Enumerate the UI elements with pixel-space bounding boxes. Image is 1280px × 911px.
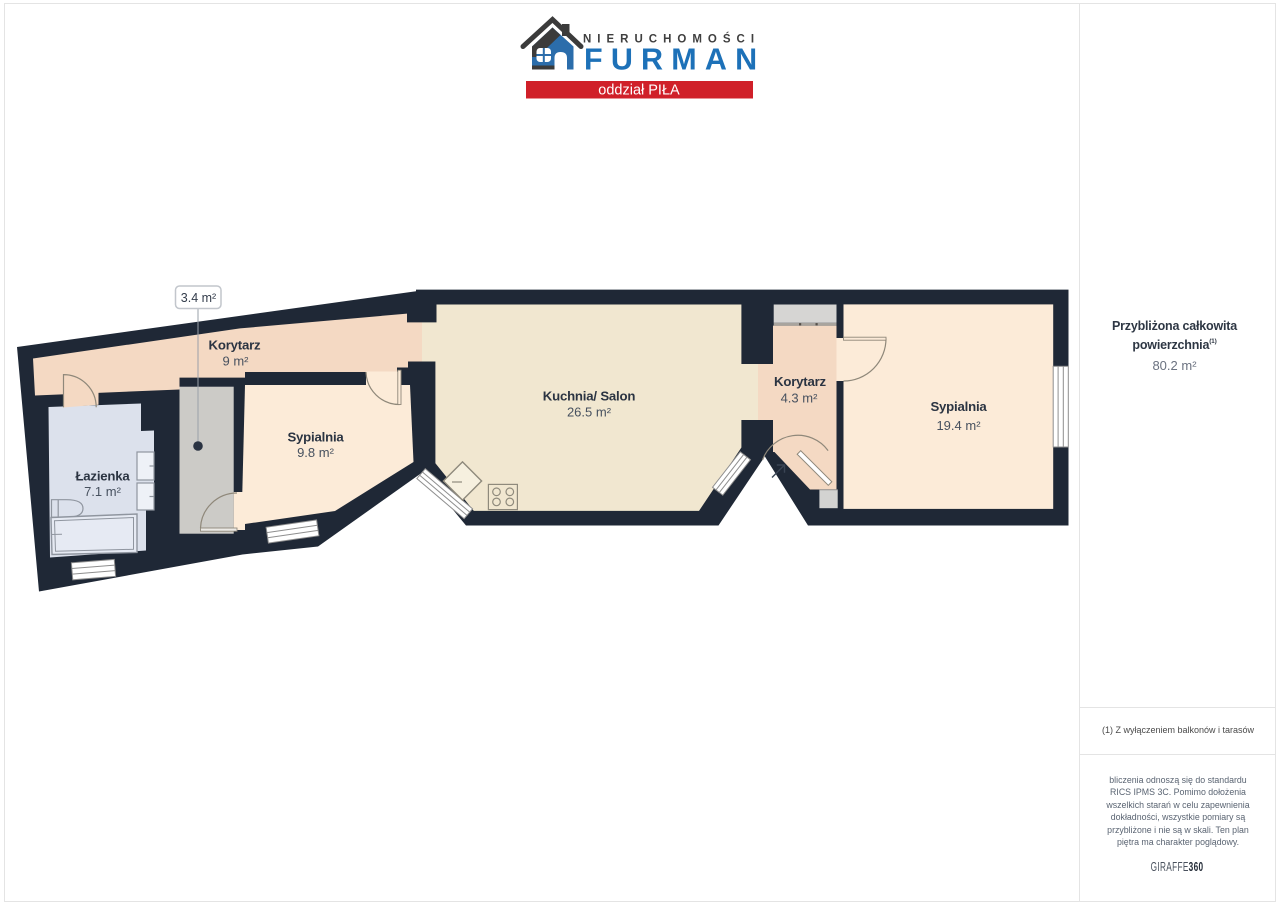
svg-text:4.3 m²: 4.3 m²	[781, 391, 819, 406]
svg-text:Sypialnia: Sypialnia	[930, 399, 987, 414]
svg-text:26.5 m²: 26.5 m²	[567, 405, 612, 420]
svg-text:9.8 m²: 9.8 m²	[297, 445, 335, 460]
svg-text:3.4 m²: 3.4 m²	[181, 291, 216, 305]
svg-text:Sypialnia: Sypialnia	[287, 429, 344, 444]
svg-text:9 m²: 9 m²	[223, 354, 250, 369]
svg-text:Kuchnia/ Salon: Kuchnia/ Salon	[543, 388, 636, 403]
svg-text:7.1 m²: 7.1 m²	[84, 484, 122, 499]
svg-text:Korytarz: Korytarz	[774, 374, 827, 389]
svg-text:Łazienka: Łazienka	[75, 468, 130, 483]
svg-text:Korytarz: Korytarz	[209, 337, 262, 352]
svg-text:19.4 m²: 19.4 m²	[936, 418, 981, 433]
